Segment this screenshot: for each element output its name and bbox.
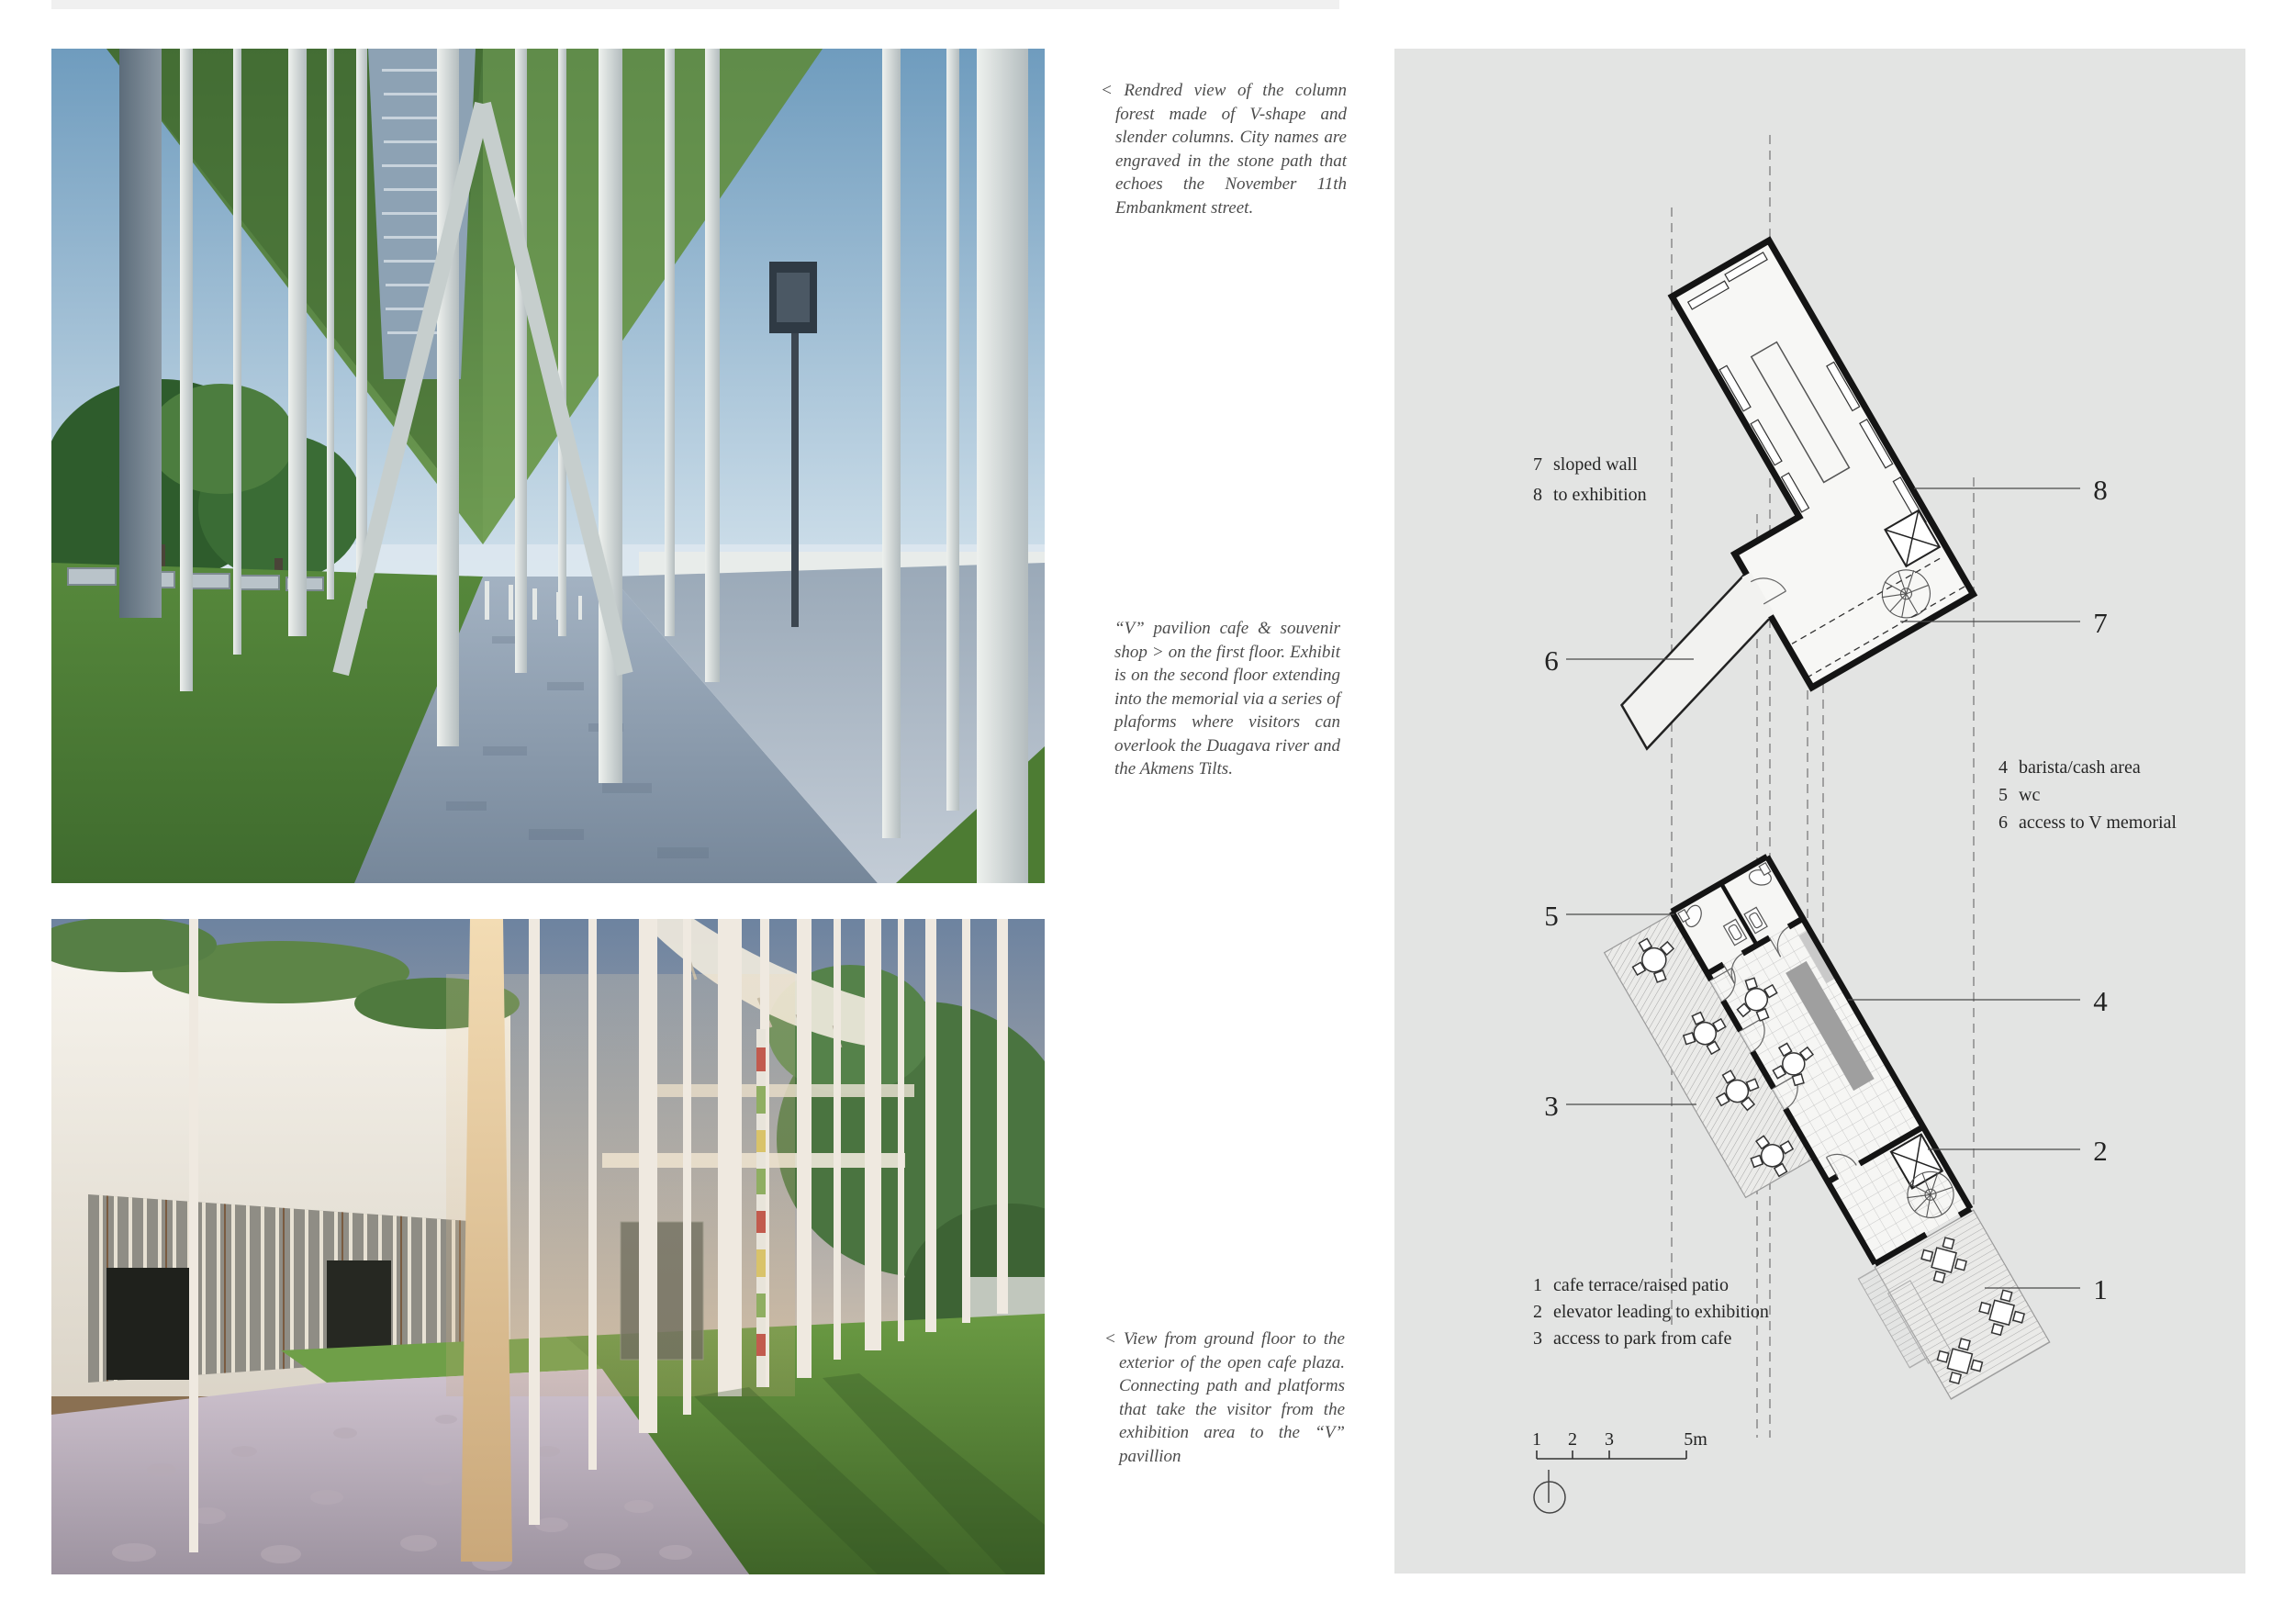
legend-label: access to park from cafe — [1553, 1329, 1731, 1348]
scale-1: 1 — [1532, 1429, 1541, 1450]
legend-label: access to V memorial — [2019, 813, 2177, 832]
portfolio-board: < Rendred view of the column forest made… — [0, 0, 2295, 1624]
legend-item: 5 wc — [1998, 786, 2177, 813]
legend-label: cafe terrace/raised patio — [1553, 1276, 1729, 1294]
caption-render-bottom: < View from ground floor to the exterior… — [1104, 1327, 1345, 1468]
callout-5: 5 — [1544, 900, 1559, 932]
legend-num: 5 — [1998, 786, 2019, 804]
scale-2: 2 — [1568, 1429, 1577, 1450]
callout-3: 3 — [1544, 1090, 1559, 1122]
render-bottom-image — [51, 919, 1045, 1574]
legend-item: 2 elevator leading to exhibition — [1533, 1303, 1769, 1329]
legend-item: 4 barista/cash area — [1998, 758, 2177, 786]
callout-1: 1 — [2093, 1273, 2108, 1305]
legend-num: 3 — [1533, 1329, 1553, 1348]
legend-label: elevator leading to exhibition — [1553, 1303, 1769, 1321]
legend-item: 1 cafe terrace/raised patio — [1533, 1276, 1769, 1303]
legend-num: 6 — [1998, 813, 2019, 832]
legend-num: 7 — [1533, 455, 1553, 474]
callout-2: 2 — [2093, 1135, 2108, 1167]
legend-item: 8 to exhibition — [1533, 486, 1647, 516]
legend-item: 3 access to park from cafe — [1533, 1329, 1769, 1356]
legend-item: 6 access to V memorial — [1998, 813, 2177, 841]
legend-label: barista/cash area — [2019, 758, 2141, 777]
render-top-image — [51, 49, 1045, 883]
legend-lower-plan: 1 cafe terrace/raised patio 2 elevator l… — [1533, 1276, 1769, 1356]
callout-4: 4 — [2093, 985, 2108, 1017]
legend-num: 1 — [1533, 1276, 1553, 1294]
callout-8: 8 — [2093, 474, 2108, 506]
callout-7: 7 — [2093, 607, 2108, 639]
legend-num: 2 — [1533, 1303, 1553, 1321]
top-crop-strip — [51, 0, 1339, 9]
thick-column-right — [977, 49, 1028, 883]
dark-column-left — [119, 49, 162, 618]
legend-num: 4 — [1998, 758, 2019, 777]
callout-6: 6 — [1544, 644, 1559, 677]
caption-render-top: < Rendred view of the column forest made… — [1101, 79, 1347, 219]
scale-5m: 5m — [1684, 1429, 1707, 1450]
legend-label: wc — [2019, 786, 2040, 804]
caption-pavilion: “V” pavilion cafe & souvenir shop > on t… — [1114, 617, 1340, 781]
legend-label: sloped wall — [1553, 455, 1638, 474]
legend-upper-plan: 7 sloped wall 8 to exhibition — [1533, 455, 1647, 516]
legend-num: 8 — [1533, 486, 1553, 504]
legend-mid-plan: 4 barista/cash area 5 wc 6 access to V m… — [1998, 758, 2177, 841]
scale-3: 3 — [1605, 1429, 1614, 1450]
legend-label: to exhibition — [1553, 486, 1647, 504]
striped-art-column — [756, 1029, 766, 1387]
legend-item: 7 sloped wall — [1533, 455, 1647, 486]
